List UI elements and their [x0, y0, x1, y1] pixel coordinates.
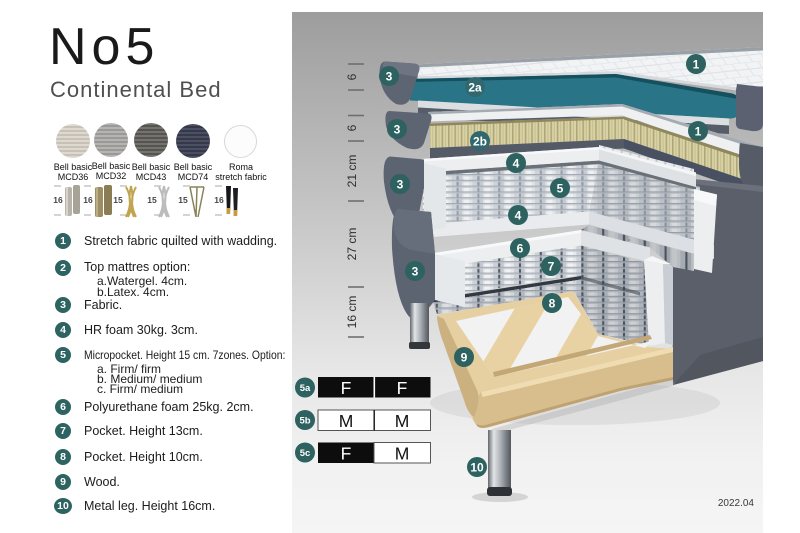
svg-text:27 cm: 27 cm: [345, 228, 359, 261]
svg-text:8: 8: [549, 297, 556, 311]
svg-text:4: 4: [515, 209, 522, 223]
svg-text:M: M: [395, 444, 410, 464]
svg-text:3: 3: [386, 70, 393, 84]
svg-text:1: 1: [695, 125, 702, 139]
svg-text:9: 9: [461, 351, 468, 365]
svg-text:5b: 5b: [299, 416, 310, 427]
svg-text:3: 3: [412, 265, 419, 279]
svg-text:10: 10: [470, 461, 484, 475]
svg-text:M: M: [395, 411, 410, 431]
svg-text:5a: 5a: [300, 383, 311, 394]
svg-text:6: 6: [345, 124, 359, 131]
svg-text:F: F: [397, 378, 408, 398]
svg-text:F: F: [341, 378, 352, 398]
svg-text:2022.04: 2022.04: [718, 498, 755, 509]
svg-text:3: 3: [394, 123, 401, 137]
svg-text:7: 7: [548, 260, 555, 274]
svg-text:21 cm: 21 cm: [345, 155, 359, 188]
svg-text:6: 6: [517, 242, 524, 256]
svg-text:2a: 2a: [468, 81, 482, 95]
svg-text:M: M: [339, 411, 354, 431]
svg-text:16 cm: 16 cm: [345, 296, 359, 329]
svg-text:5: 5: [557, 182, 564, 196]
svg-text:4: 4: [513, 157, 520, 171]
svg-text:F: F: [341, 444, 352, 464]
svg-text:2b: 2b: [473, 135, 487, 149]
svg-text:3: 3: [397, 178, 404, 192]
svg-text:6: 6: [345, 73, 359, 80]
svg-text:5c: 5c: [300, 448, 311, 459]
svg-text:1: 1: [693, 58, 700, 72]
